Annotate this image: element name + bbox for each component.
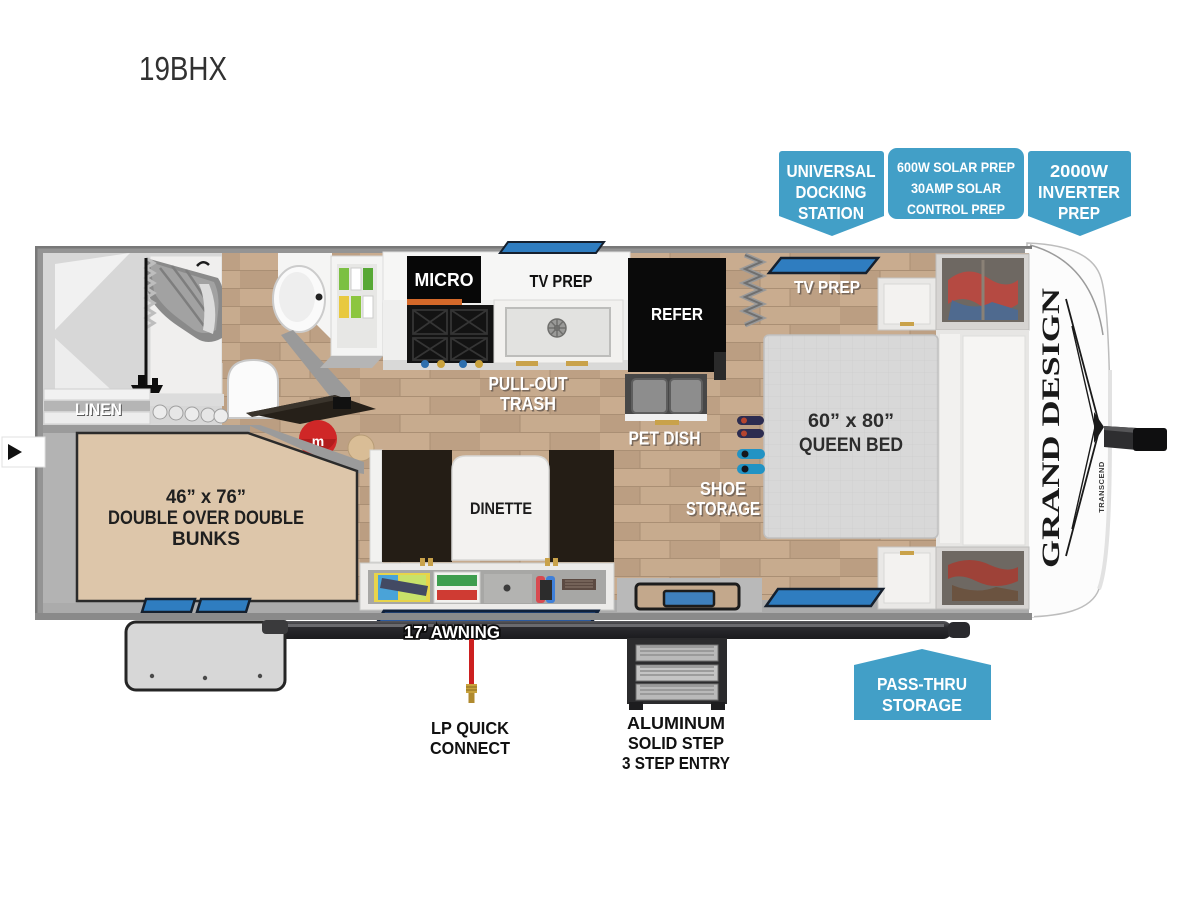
svg-text:TRANSCEND: TRANSCEND: [1097, 461, 1106, 513]
svg-text:CONTROL PREP: CONTROL PREP: [907, 201, 1005, 217]
svg-text:PET DISH: PET DISH: [629, 429, 701, 449]
svg-text:REFER: REFER: [651, 304, 703, 324]
svg-text:TV PREP: TV PREP: [530, 271, 593, 291]
svg-text:MICRO: MICRO: [415, 270, 474, 290]
svg-text:DOUBLE OVER DOUBLE: DOUBLE OVER DOUBLE: [108, 508, 304, 529]
svg-text:STORAGE: STORAGE: [882, 695, 962, 715]
svg-text:DOCKING: DOCKING: [796, 182, 867, 202]
svg-text:30AMP SOLAR: 30AMP SOLAR: [911, 180, 1001, 196]
svg-text:STATION: STATION: [798, 203, 864, 223]
svg-text:STORAGE: STORAGE: [686, 499, 760, 519]
svg-text:17’ AWNING: 17’ AWNING: [404, 622, 500, 642]
svg-text:ALUMINUM: ALUMINUM: [627, 713, 725, 733]
svg-text:SOLID STEP: SOLID STEP: [628, 733, 724, 753]
svg-text:PULL-OUT: PULL-OUT: [489, 374, 568, 394]
svg-text:SHOE: SHOE: [700, 479, 746, 499]
svg-text:QUEEN BED: QUEEN BED: [799, 435, 903, 456]
svg-text:GRAND DESIGN: GRAND DESIGN: [1038, 288, 1065, 568]
svg-text:2000W: 2000W: [1050, 161, 1108, 181]
svg-text:19BHX: 19BHX: [139, 50, 227, 87]
svg-text:PREP: PREP: [1058, 203, 1100, 223]
svg-text:UNIVERSAL: UNIVERSAL: [787, 161, 876, 181]
svg-text:LP QUICK: LP QUICK: [431, 718, 509, 738]
svg-text:BUNKS: BUNKS: [172, 529, 240, 550]
svg-text:60” x 80”: 60” x 80”: [808, 411, 894, 432]
svg-text:LINEN: LINEN: [75, 400, 122, 419]
svg-text:3 STEP ENTRY: 3 STEP ENTRY: [622, 753, 730, 773]
svg-text:TV PREP: TV PREP: [794, 277, 860, 297]
svg-text:TRASH: TRASH: [500, 394, 556, 414]
svg-text:PASS-THRU: PASS-THRU: [877, 674, 967, 694]
svg-text:DINETTE: DINETTE: [470, 500, 532, 518]
svg-text:CONNECT: CONNECT: [430, 738, 510, 758]
svg-text:600W SOLAR PREP: 600W SOLAR PREP: [897, 159, 1015, 175]
svg-text:46” x 76”: 46” x 76”: [166, 487, 246, 508]
svg-text:INVERTER: INVERTER: [1038, 182, 1120, 202]
